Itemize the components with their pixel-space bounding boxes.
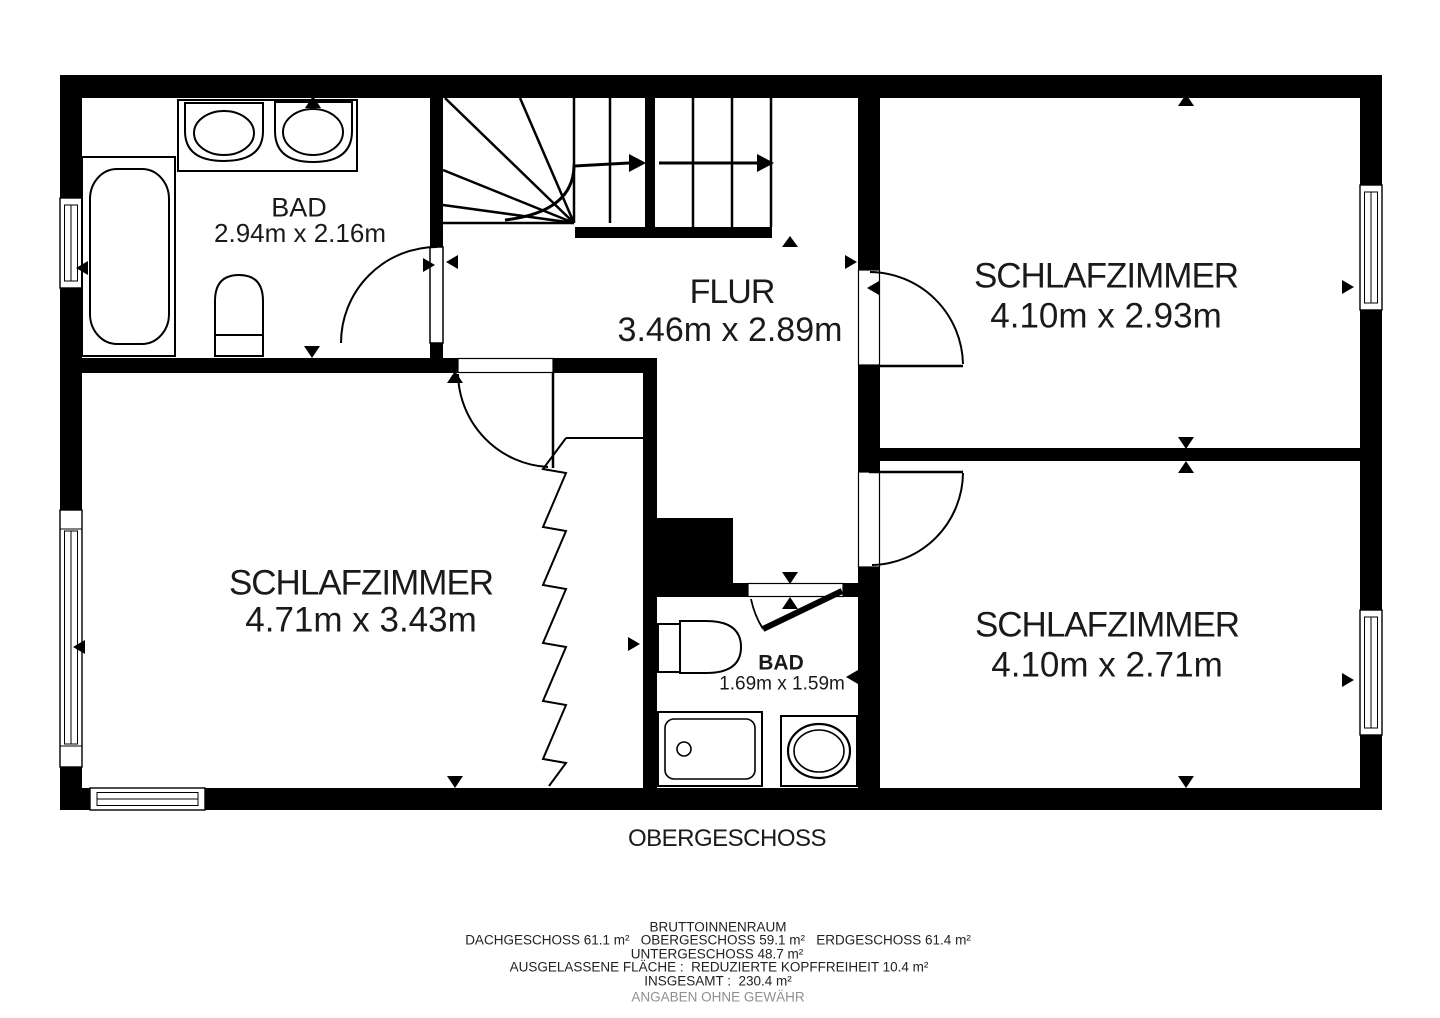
window-bedroom-bottomright — [1360, 610, 1382, 735]
door-bedroom-bottomright — [859, 472, 964, 567]
window-bedroom-topright — [1360, 185, 1382, 310]
room-dims-schlafzimmer-topright: 4.10m x 2.93m — [990, 299, 1222, 334]
sink-small-bath — [781, 716, 857, 786]
toilet-top-bath — [215, 275, 263, 356]
window-bath-left — [60, 198, 82, 288]
floor-plan-drawing — [0, 0, 1440, 1018]
room-dims-schlafzimmer-bottomright: 4.10m x 2.71m — [991, 648, 1223, 683]
shower — [658, 712, 762, 786]
room-label-schlafzimmer-bottomright: SCHLAFZIMMER — [975, 608, 1239, 643]
room-label-schlafzimmer-left: SCHLAFZIMMER — [229, 566, 493, 601]
wardrobe — [543, 438, 643, 786]
floor-plan-page: BAD 2.94m x 2.16m FLUR 3.46m x 2.89m SCH… — [0, 0, 1440, 1018]
floor-title: OBERGESCHOSS — [628, 827, 826, 851]
summary-line-excluded-area: AUSGELASSENE FLÄCHE : REDUZIERTE KOPFFRE… — [510, 960, 929, 974]
room-label-bad-small: BAD — [758, 653, 804, 674]
toilet-small-bath — [658, 621, 741, 673]
vanity — [178, 100, 357, 171]
room-dims-flur: 3.46m x 2.89m — [618, 313, 843, 347]
room-dims-bad-small: 1.69m x 1.59m — [719, 675, 845, 694]
summary-disclaimer: ANGABEN OHNE GEWÄHR — [631, 990, 804, 1004]
staircase — [443, 98, 774, 227]
room-dims-bad-top: 2.94m x 2.16m — [214, 220, 386, 246]
summary-line-total: INSGESAMT : 230.4 m² — [644, 974, 792, 988]
room-label-schlafzimmer-topright: SCHLAFZIMMER — [974, 259, 1238, 294]
door-bedroom-left — [458, 359, 553, 469]
window-bedroom-left — [60, 510, 82, 767]
room-label-flur: FLUR — [690, 275, 775, 309]
room-dims-schlafzimmer-left: 4.71m x 3.43m — [245, 603, 477, 638]
summary-line-floors: DACHGESCHOSS 61.1 m² OBERGESCHOSS 59.1 m… — [465, 933, 971, 947]
window-bedroom-bottom — [90, 788, 205, 810]
bathtub — [82, 157, 175, 356]
